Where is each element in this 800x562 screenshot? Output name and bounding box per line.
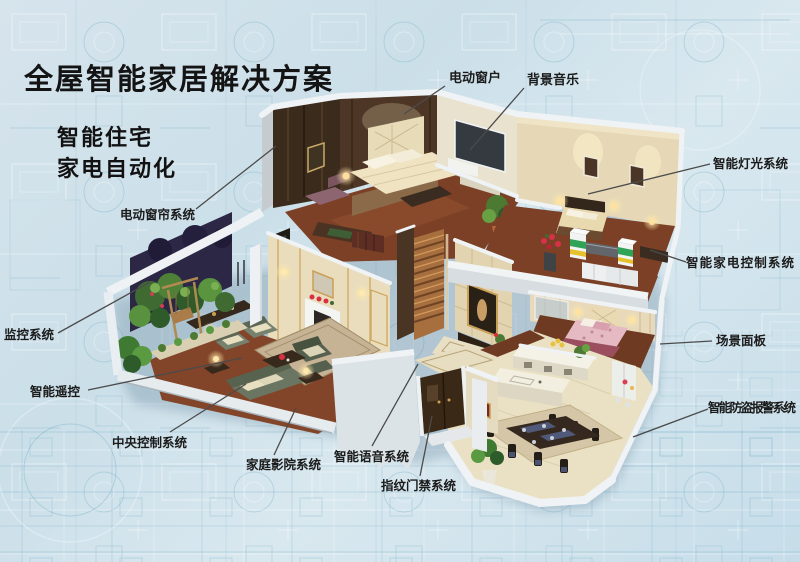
label-smart-remote: 智能遥控 — [29, 384, 81, 399]
staircase — [397, 226, 447, 340]
label-central-control: 中央控制系统 — [112, 435, 188, 450]
label-smart-lighting: 智能灯光系统 — [712, 156, 789, 171]
smart-home-poster: 电动窗户 背景音乐 智能灯光系统 智能家电控制系统 场景面板 智能防盗报警系统 … — [0, 0, 800, 562]
label-home-theater: 家庭影院系统 — [246, 457, 322, 472]
subtitle-line-1: 智能住宅 — [57, 120, 153, 152]
label-scene-panel: 场景面板 — [716, 333, 767, 348]
label-voice-system: 智能语音系统 — [333, 449, 410, 464]
label-background-music: 背景音乐 — [527, 72, 579, 88]
label-fingerprint: 指纹门禁系统 — [381, 478, 457, 493]
label-electric-window: 电动窗户 — [449, 70, 501, 86]
label-electric-curtain: 电动窗帘系统 — [120, 207, 196, 222]
page-title: 全屋智能家居解决方案 — [24, 56, 334, 98]
label-monitoring: 监控系统 — [4, 327, 55, 342]
subtitle-line-2: 家电自动化 — [57, 151, 177, 183]
label-burglar-alarm: 智能防盗报警系统 — [707, 400, 796, 415]
label-appliance-control: 智能家电控制系统 — [685, 255, 794, 270]
